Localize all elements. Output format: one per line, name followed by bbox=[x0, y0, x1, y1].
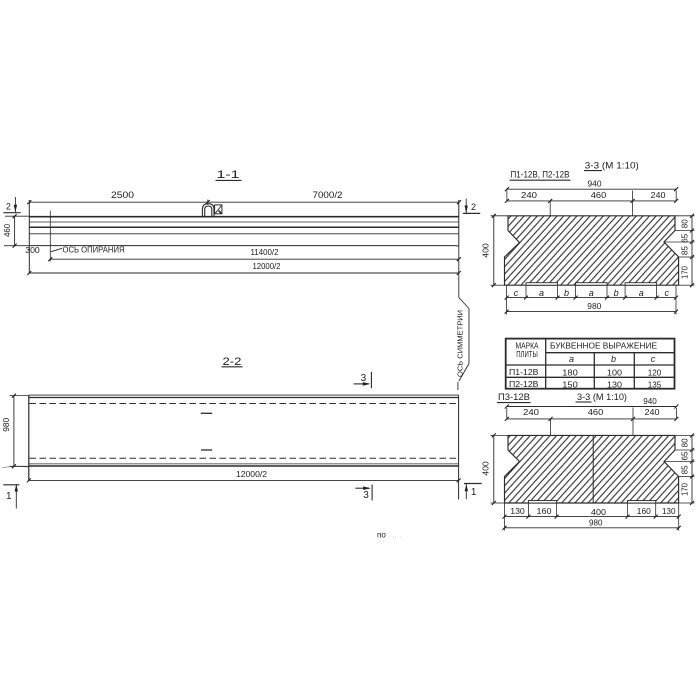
svg-text:1: 1 bbox=[471, 487, 477, 498]
svg-text:b: b bbox=[614, 288, 619, 298]
svg-text:ОСЬ СИММЕТРИИ: ОСЬ СИММЕТРИИ bbox=[455, 310, 464, 377]
svg-text:180: 180 bbox=[562, 367, 578, 377]
svg-text:300: 300 bbox=[25, 245, 40, 255]
svg-text:65: 65 bbox=[681, 233, 690, 243]
svg-text:2500: 2500 bbox=[111, 190, 134, 200]
svg-text:2: 2 bbox=[6, 202, 11, 212]
svg-text:a: a bbox=[589, 288, 594, 298]
svg-text:a: a bbox=[569, 354, 574, 364]
svg-text:130: 130 bbox=[607, 379, 622, 389]
svg-text:П1-12В, П2-12В: П1-12В, П2-12В bbox=[511, 170, 570, 180]
svg-text:940: 940 bbox=[588, 179, 602, 189]
svg-text:a: a bbox=[639, 288, 644, 298]
svg-text:170: 170 bbox=[681, 265, 690, 279]
svg-text:b: b bbox=[564, 288, 569, 298]
svg-text:c: c bbox=[514, 288, 519, 298]
svg-text:11400/2: 11400/2 bbox=[251, 247, 279, 257]
svg-text:1-1: 1-1 bbox=[217, 169, 240, 181]
svg-text:240: 240 bbox=[651, 190, 666, 200]
svg-text:240: 240 bbox=[521, 190, 537, 200]
svg-text:2-2: 2-2 bbox=[223, 356, 242, 368]
svg-text:b: b bbox=[611, 354, 616, 364]
svg-text:80: 80 bbox=[681, 438, 690, 448]
svg-text:c: c bbox=[665, 288, 670, 298]
svg-text:980: 980 bbox=[589, 517, 603, 527]
svg-text:П3-12В: П3-12В bbox=[498, 392, 530, 402]
svg-text:3: 3 bbox=[363, 490, 369, 501]
svg-text:150: 150 bbox=[562, 379, 578, 389]
svg-text:460: 460 bbox=[588, 407, 604, 417]
svg-text:130: 130 bbox=[662, 506, 676, 516]
svg-text:12000/2: 12000/2 bbox=[253, 261, 281, 271]
svg-text:2: 2 bbox=[471, 202, 476, 212]
svg-text:400: 400 bbox=[480, 243, 490, 258]
svg-text:170: 170 bbox=[681, 482, 690, 496]
svg-text:400: 400 bbox=[591, 507, 606, 517]
svg-text:85: 85 bbox=[681, 246, 690, 256]
svg-text:c: c bbox=[651, 354, 656, 364]
svg-text:980: 980 bbox=[587, 301, 601, 311]
svg-text:ОСЬ ОПИРАНИЯ: ОСЬ ОПИРАНИЯ bbox=[63, 245, 125, 254]
svg-text:980: 980 bbox=[1, 418, 11, 432]
svg-text:100: 100 bbox=[607, 367, 622, 377]
svg-text:160: 160 bbox=[637, 506, 651, 516]
svg-text:120: 120 bbox=[648, 367, 662, 377]
svg-text:ПЛИТЫ: ПЛИТЫ bbox=[516, 349, 538, 359]
svg-text:3-3 (М 1:10): 3-3 (М 1:10) bbox=[577, 392, 627, 403]
svg-text:460: 460 bbox=[591, 190, 607, 200]
svg-text:240: 240 bbox=[523, 407, 539, 417]
svg-text:П2-12В: П2-12В bbox=[509, 379, 539, 389]
svg-text:130: 130 bbox=[510, 506, 525, 516]
svg-text:80: 80 bbox=[681, 219, 690, 229]
svg-text:400: 400 bbox=[480, 461, 490, 476]
svg-text:a: a bbox=[539, 288, 544, 298]
svg-text:940: 940 bbox=[643, 396, 657, 406]
svg-text:85: 85 bbox=[681, 465, 690, 475]
svg-text:3-3 (М 1:10): 3-3 (М 1:10) bbox=[585, 161, 639, 172]
svg-text:П1-12В: П1-12В bbox=[509, 367, 539, 377]
svg-text:460: 460 bbox=[2, 224, 12, 237]
svg-text:по . .. .: по . .. . bbox=[377, 531, 401, 540]
svg-text:160: 160 bbox=[537, 506, 552, 516]
svg-text:12000/2: 12000/2 bbox=[236, 469, 267, 479]
svg-text:7000/2: 7000/2 bbox=[313, 190, 343, 200]
svg-text:БУКВЕННОЕ ВЫРАЖЕНИЕ: БУКВЕННОЕ ВЫРАЖЕНИЕ bbox=[550, 340, 657, 350]
svg-text:240: 240 bbox=[645, 407, 660, 417]
svg-text:1: 1 bbox=[6, 491, 12, 502]
svg-text:135: 135 bbox=[648, 379, 662, 389]
svg-text:65: 65 bbox=[681, 451, 690, 461]
